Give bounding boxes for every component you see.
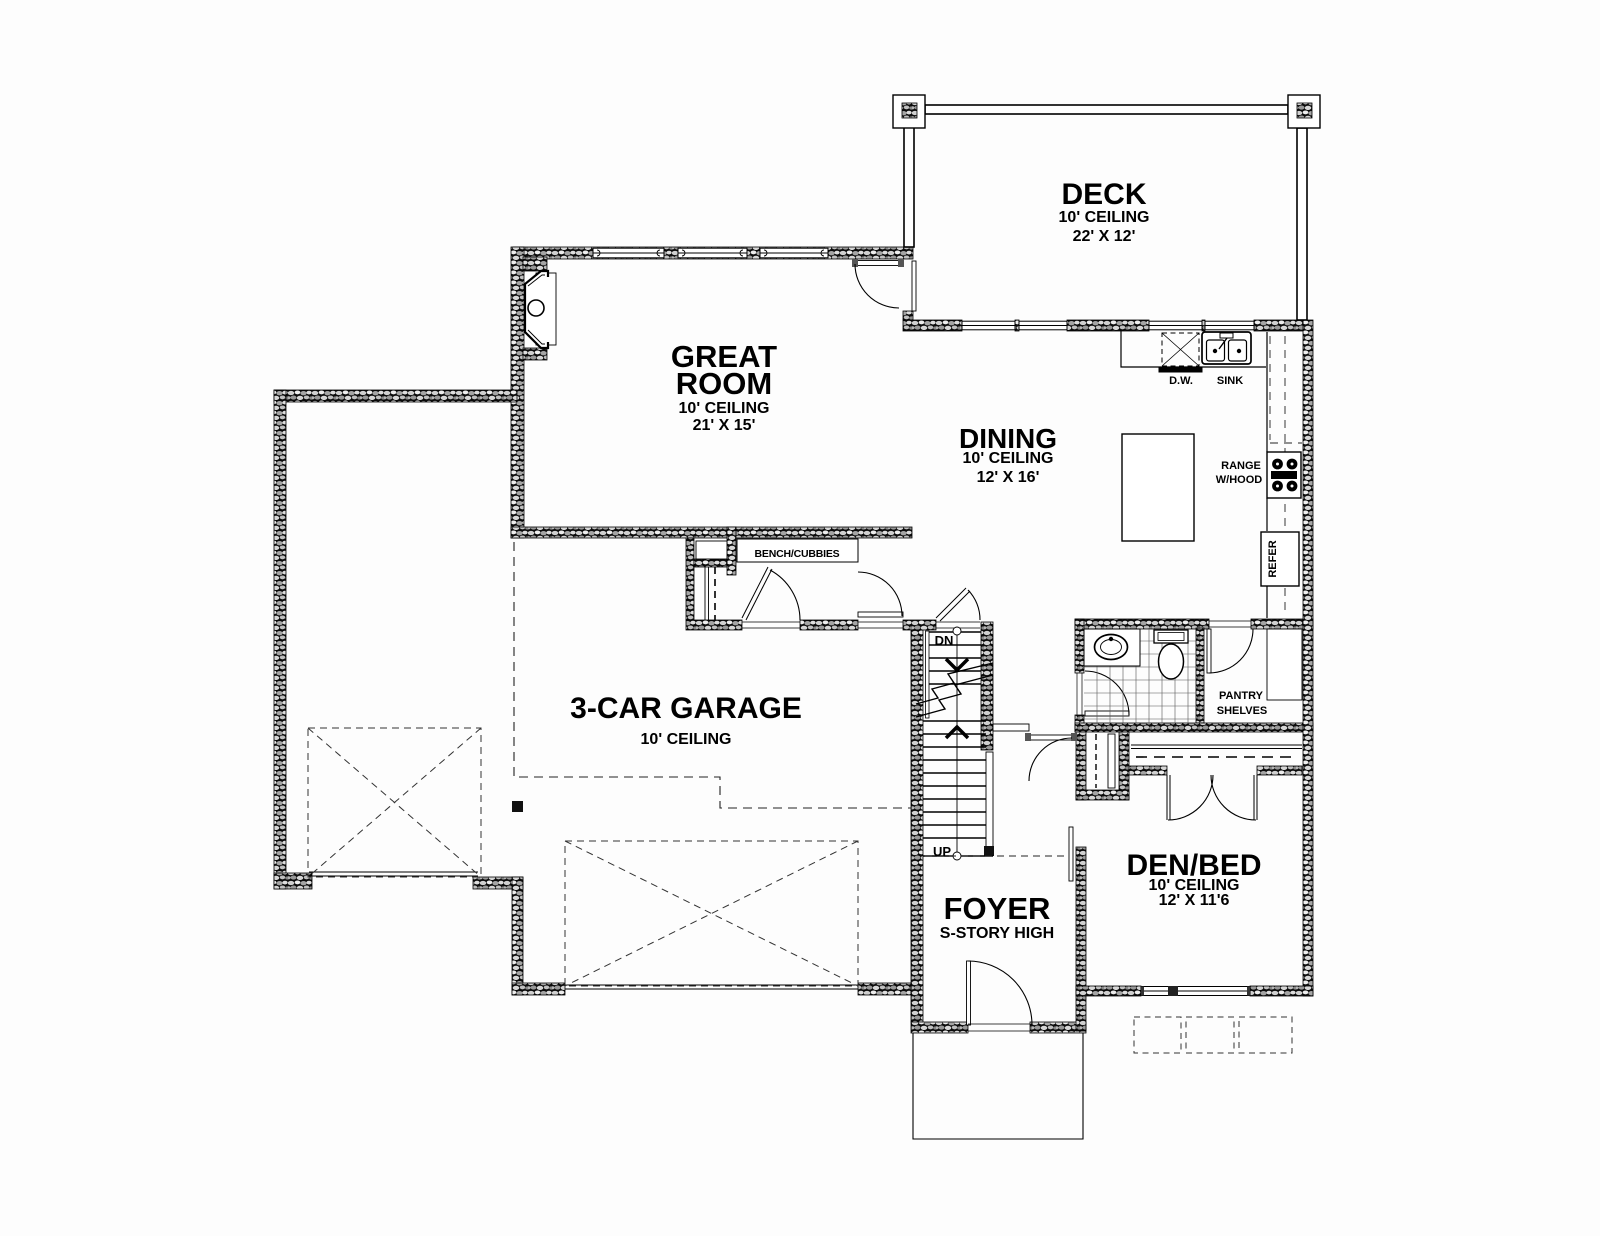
svg-text:S-STORY HIGH: S-STORY HIGH	[940, 925, 1054, 942]
svg-text:21' X 15': 21' X 15'	[693, 417, 756, 434]
svg-text:DECK: DECK	[1061, 178, 1146, 211]
svg-text:PANTRY: PANTRY	[1219, 690, 1264, 702]
svg-text:DN: DN	[935, 633, 954, 648]
svg-text:BENCH/CUBBIES: BENCH/CUBBIES	[755, 548, 840, 560]
svg-text:10' CEILING: 10' CEILING	[963, 450, 1054, 467]
svg-text:3-CAR GARAGE: 3-CAR GARAGE	[570, 692, 802, 725]
svg-text:SINK: SINK	[1217, 375, 1243, 387]
svg-text:12' X 11'6: 12' X 11'6	[1159, 892, 1230, 909]
svg-text:22' X 12': 22' X 12'	[1073, 228, 1136, 245]
svg-text:SHELVES: SHELVES	[1217, 705, 1268, 717]
svg-text:RANGE: RANGE	[1221, 460, 1261, 472]
svg-text:10' CEILING: 10' CEILING	[641, 731, 732, 748]
svg-text:12' X 16': 12' X 16'	[977, 469, 1040, 486]
svg-text:W/HOOD: W/HOOD	[1216, 474, 1262, 486]
svg-text:FOYER: FOYER	[944, 891, 1051, 926]
svg-text:REFER: REFER	[1267, 540, 1279, 577]
svg-text:D.W.: D.W.	[1169, 375, 1193, 387]
svg-text:ROOM: ROOM	[676, 366, 772, 401]
svg-text:10' CEILING: 10' CEILING	[1059, 209, 1150, 226]
svg-text:UP: UP	[933, 844, 951, 859]
svg-text:10' CEILING: 10' CEILING	[679, 400, 770, 417]
